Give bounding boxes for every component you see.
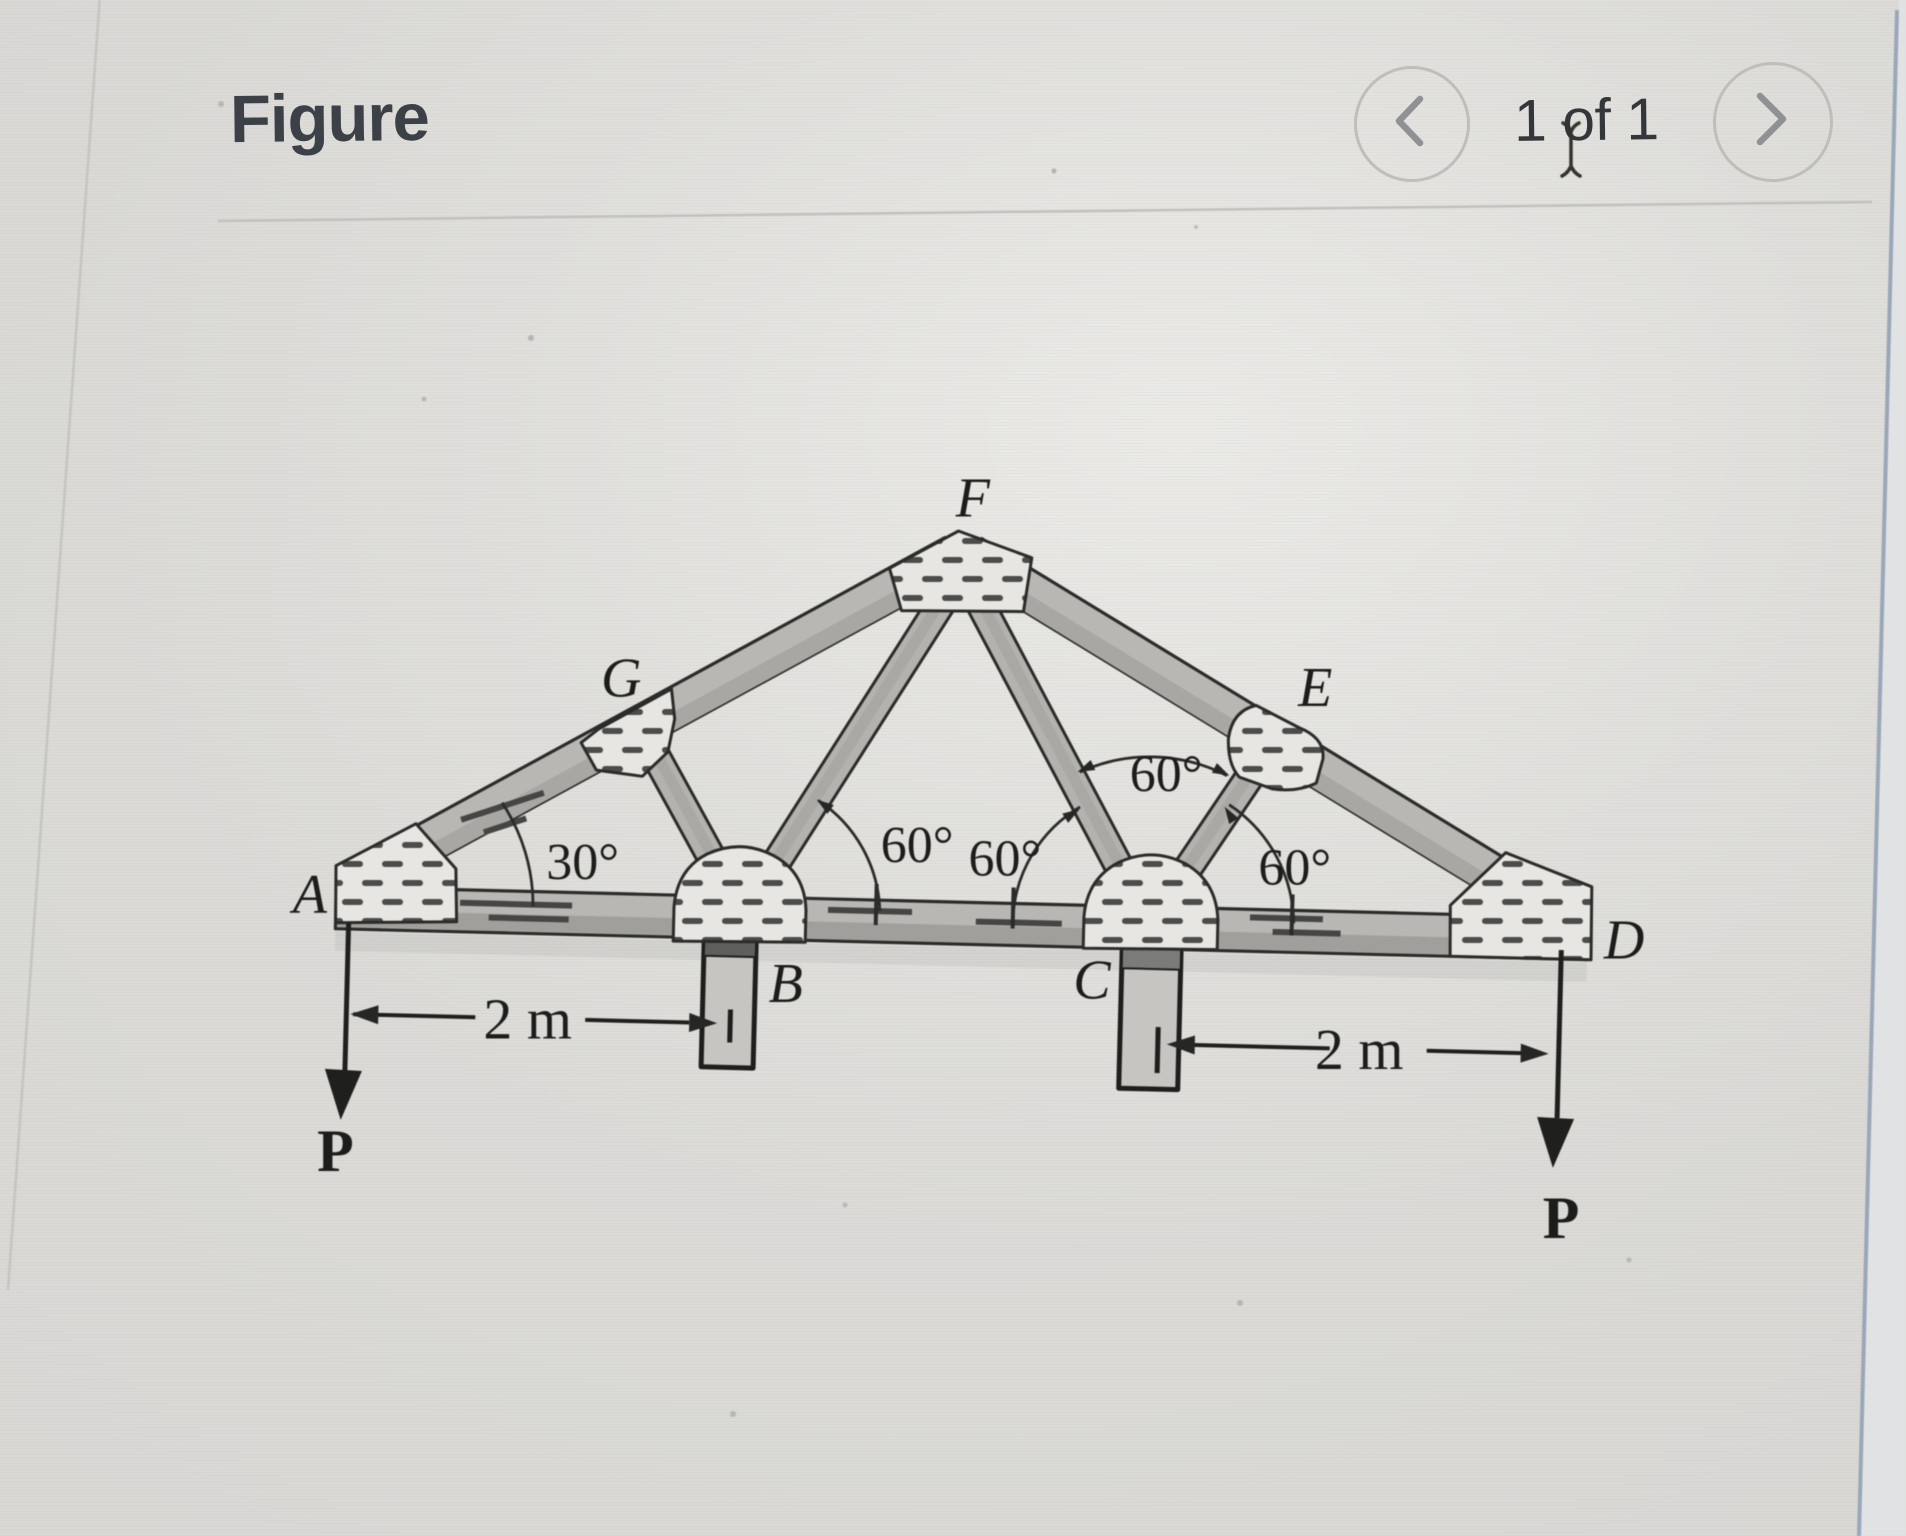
svg-text:B: B [769,953,803,1015]
svg-text:60°: 60° [1130,746,1203,803]
svg-text:F: F [955,467,991,529]
svg-text:60°: 60° [881,817,954,874]
svg-text:P: P [317,1118,354,1184]
svg-text:2 m: 2 m [1315,1017,1404,1082]
svg-text:60°: 60° [1258,840,1331,897]
svg-text:P: P [1543,1185,1580,1251]
svg-text:E: E [1297,657,1332,719]
svg-text:G: G [601,648,641,710]
svg-text:D: D [1603,910,1644,972]
svg-text:30°: 30° [546,834,619,891]
svg-text:C: C [1073,950,1111,1012]
svg-text:60°: 60° [969,830,1042,887]
svg-text:A: A [289,864,328,926]
svg-text:2 m: 2 m [483,987,572,1052]
